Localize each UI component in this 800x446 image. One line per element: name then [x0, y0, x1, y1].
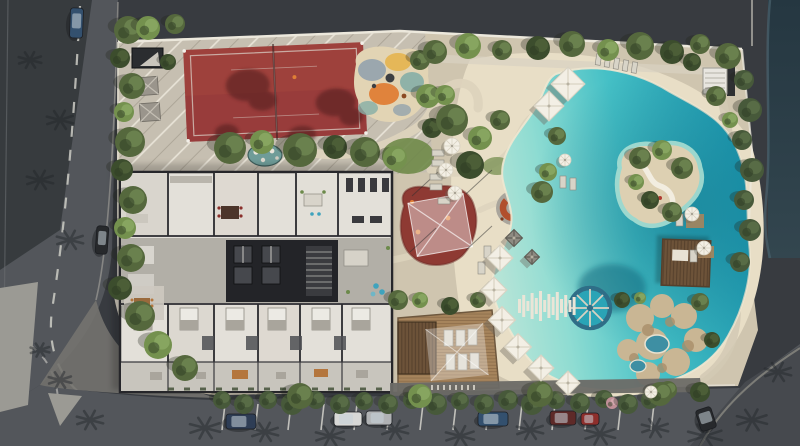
tree-shade [616, 298, 622, 304]
tree-shade [444, 304, 451, 311]
tree-shade [427, 50, 437, 60]
tree-shade [600, 48, 609, 57]
plank [560, 299, 563, 313]
car [546, 411, 576, 428]
tree-shade [630, 180, 636, 186]
tree-shade [162, 60, 168, 66]
canopy-pole [567, 83, 570, 86]
umbrella-tip [445, 169, 447, 171]
tree-shade [333, 402, 341, 410]
canopy-pole [567, 382, 570, 385]
car-glass [483, 414, 498, 424]
tree-shade [237, 402, 245, 410]
umbrella-tip [650, 391, 652, 393]
dining-table [221, 206, 239, 219]
tree-shade [744, 168, 754, 178]
tree-shade [636, 297, 641, 302]
car-glass [98, 231, 107, 246]
tree-shade [117, 226, 126, 235]
tree-shade [117, 110, 125, 118]
tree-shade [530, 46, 540, 56]
tree-shade [644, 198, 651, 205]
tree-shade [733, 260, 741, 268]
car-glass [371, 413, 384, 423]
canopy-pole [501, 319, 504, 322]
canopy-pole [540, 367, 543, 370]
tree-shade [501, 398, 509, 406]
tree-shade [381, 402, 389, 410]
tree-shade [262, 398, 269, 405]
tree-shade [441, 117, 454, 130]
scene-svg [0, 0, 800, 446]
tree-shade [120, 139, 132, 151]
plank [535, 298, 538, 314]
plank [543, 300, 546, 312]
tree-shade [493, 118, 501, 126]
tree-shade [413, 58, 421, 66]
tree-shade [355, 149, 367, 161]
umbrella-tip [454, 192, 456, 194]
tree-shade [706, 338, 712, 344]
plank [552, 297, 555, 315]
canopy-pole [493, 289, 496, 292]
car-glass [339, 414, 353, 424]
tree-shade [387, 156, 397, 166]
tree-shade [709, 94, 717, 102]
plank [526, 301, 529, 311]
car-glass [72, 13, 82, 28]
tree-shade [735, 138, 743, 146]
tree-shade [254, 140, 264, 150]
tree-shade [327, 145, 337, 155]
umbrella-tip [564, 159, 566, 161]
tree-shade [551, 134, 558, 141]
tree-shade [118, 27, 129, 38]
plank [518, 299, 521, 313]
tree-shade [114, 168, 123, 177]
stairwell [306, 246, 332, 296]
tree-shade [216, 398, 223, 405]
car [474, 412, 508, 429]
tree-shade [737, 198, 745, 206]
plank [531, 293, 534, 319]
plank [556, 292, 559, 320]
tree-shade [121, 255, 132, 266]
car-glass [584, 415, 593, 423]
tree-shade [459, 43, 469, 53]
round-pool-feature [570, 288, 610, 328]
car-glass [231, 416, 246, 427]
tree-shade [686, 60, 693, 67]
tree-shade [694, 300, 701, 307]
umbrella-tip [703, 247, 705, 249]
canopy-pole [499, 257, 502, 260]
car-glass [555, 413, 568, 423]
tree-shade [674, 166, 683, 175]
plank [547, 294, 550, 318]
tree-shade [472, 298, 478, 304]
tree-shade [621, 402, 629, 410]
tree-shade [438, 93, 446, 101]
plank [522, 295, 525, 317]
tree-shade [531, 391, 541, 401]
tree-shade [630, 43, 641, 54]
tree-shade [542, 170, 549, 177]
plank [539, 291, 542, 321]
tree-shade [742, 108, 752, 118]
tree-shade [655, 148, 663, 156]
sports-court [182, 40, 368, 149]
tree-shade [472, 136, 482, 146]
tree-shade [632, 156, 641, 165]
tree-shade [742, 228, 751, 237]
tree-shade [123, 197, 134, 208]
car [222, 414, 256, 432]
tree-shade [664, 50, 674, 60]
tree-shade [113, 56, 121, 64]
tree-shade [534, 190, 543, 199]
canopy-pole [513, 237, 516, 240]
tree-shade [219, 145, 232, 158]
tree-shade [737, 78, 745, 86]
tree-shade [176, 365, 186, 375]
tree-shade [391, 298, 399, 306]
sun-deck [398, 310, 499, 392]
plank [573, 297, 576, 315]
aerial-site-render [0, 0, 800, 446]
canopy-pole [548, 105, 551, 108]
plank [568, 300, 571, 312]
tree-shade [665, 210, 673, 218]
tree-shade [358, 399, 365, 406]
tree-shade [140, 26, 150, 36]
tree-shade [148, 342, 159, 353]
tree-shade [420, 94, 430, 104]
canopy-pole [531, 256, 534, 259]
tree-shade [495, 48, 503, 56]
waterway [768, 0, 800, 258]
tree-shade [719, 53, 729, 63]
tree-shade [112, 286, 122, 296]
tree-shade [608, 402, 613, 407]
tree-shade [412, 394, 422, 404]
tree-shade [288, 147, 302, 161]
tree-shade [477, 402, 485, 410]
tree-shade [693, 42, 701, 50]
tree-shade [414, 298, 420, 304]
tree-shade [724, 118, 730, 124]
tree-shade [425, 126, 433, 134]
tree-shade [454, 399, 461, 406]
tree-shade [573, 401, 581, 409]
tree-shade [693, 390, 701, 398]
tree-shade [130, 313, 142, 325]
plank [564, 295, 567, 317]
tree-shade [563, 41, 573, 51]
canopy-pole [517, 346, 520, 349]
car [330, 412, 362, 429]
umbrella-tip [691, 213, 693, 215]
tree-shade [123, 83, 133, 93]
tree-shade [168, 22, 176, 30]
tree-shade [460, 162, 471, 173]
umbrella-tip [451, 145, 453, 147]
tree-shade [291, 393, 301, 403]
